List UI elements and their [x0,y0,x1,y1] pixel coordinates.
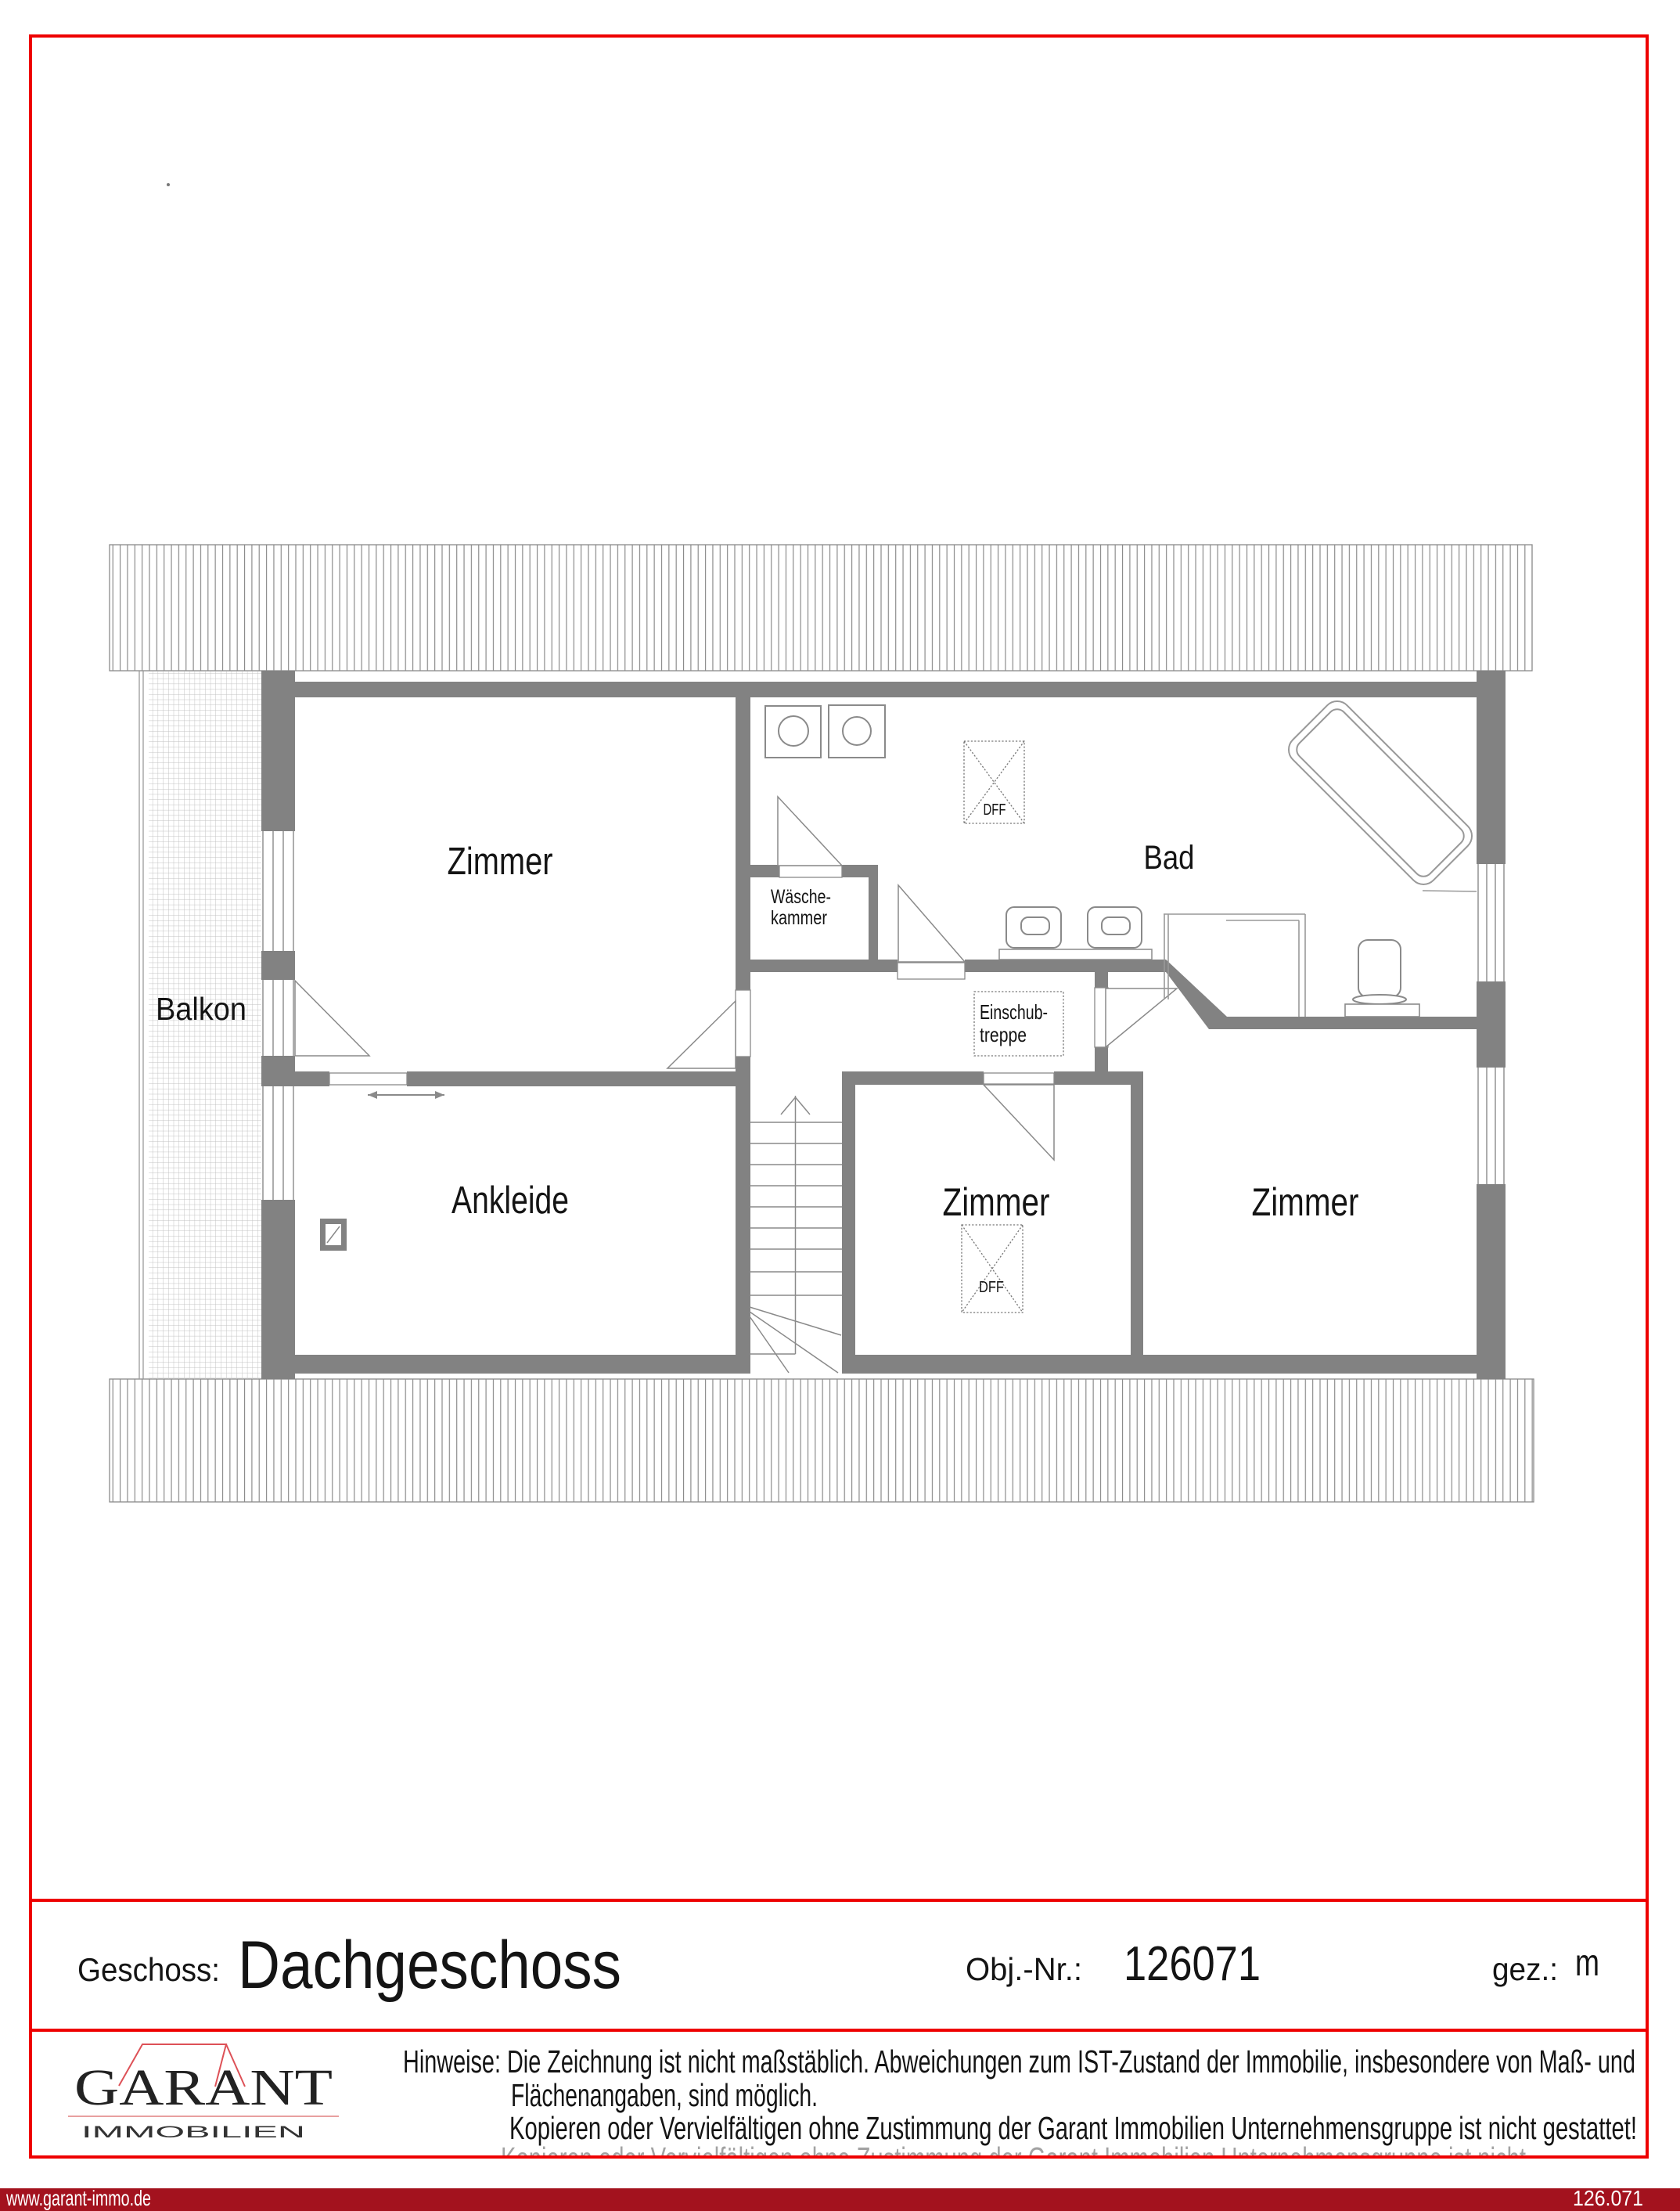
svg-text:treppe: treppe [980,1023,1027,1046]
svg-text:Obj.-Nr.:: Obj.-Nr.: [966,1951,1082,1987]
svg-text:Zimmer: Zimmer [448,841,553,883]
svg-text:kammer: kammer [771,907,827,929]
svg-text:Ankleide: Ankleide [451,1179,569,1222]
svg-text:126.071: 126.071 [1573,2186,1643,2210]
svg-text:Einschub-: Einschub- [980,1000,1048,1024]
svg-text:Zimmer: Zimmer [1252,1180,1359,1224]
svg-text:gez.:: gez.: [1492,1951,1558,1987]
svg-text:Balkon: Balkon [156,991,246,1027]
svg-text:Geschoss:: Geschoss: [77,1951,220,1988]
svg-text:DFF: DFF [984,801,1006,819]
svg-text:DFF: DFF [979,1279,1004,1296]
svg-text:126071: 126071 [1124,1937,1261,1991]
svg-text:Wäsche-: Wäsche- [771,886,831,908]
svg-text:Flächenangaben, sind möglich.: Flächenangaben, sind möglich. [511,2077,818,2113]
svg-text:Dachgeschoss: Dachgeschoss [238,1928,621,2003]
svg-text:Zimmer: Zimmer [943,1180,1050,1224]
svg-text:Bad: Bad [1144,839,1195,877]
svg-text:m: m [1575,1943,1599,1984]
svg-text:IMMOBILIEN: IMMOBILIEN [81,2123,305,2141]
svg-text:Hinweise: Die Zeichnung ist ni: Hinweise: Die Zeichnung ist nicht maßstä… [403,2044,1635,2080]
svg-text:www.garant-immo.de: www.garant-immo.de [5,2186,151,2210]
svg-text:GARANT: GARANT [74,2059,333,2116]
